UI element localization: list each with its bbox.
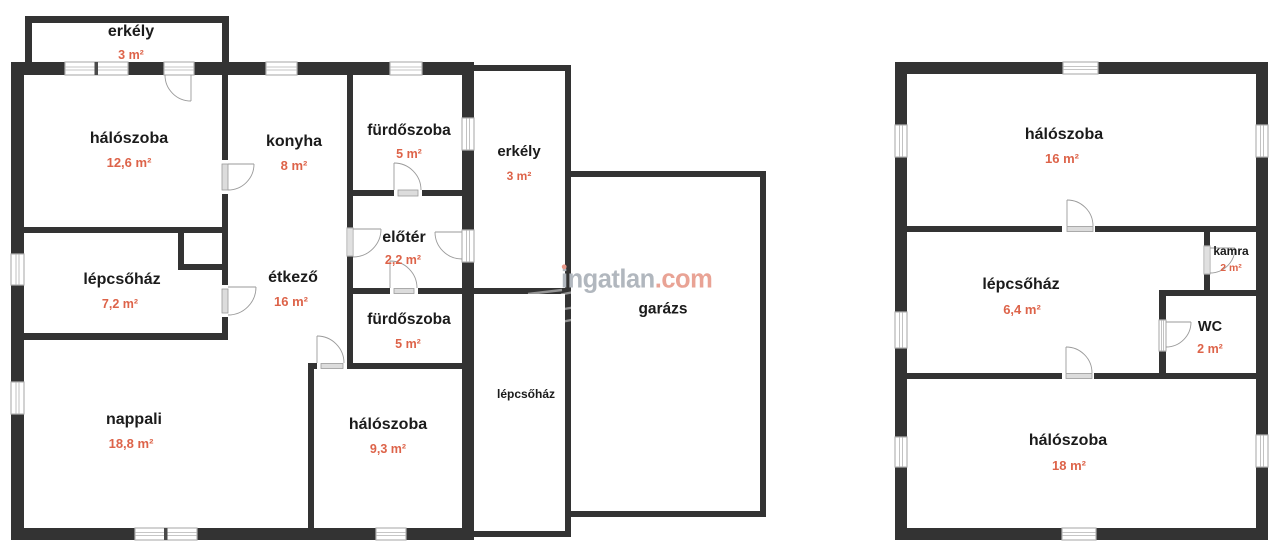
svg-text:5 m²: 5 m²	[396, 147, 422, 161]
svg-text:5 m²: 5 m²	[395, 337, 421, 351]
svg-text:fürdőszoba: fürdőszoba	[367, 311, 451, 328]
svg-text:erkély: erkély	[108, 23, 154, 40]
svg-text:előtér: előtér	[382, 229, 426, 246]
svg-text:WC: WC	[1198, 319, 1223, 335]
svg-text:hálószoba: hálószoba	[349, 416, 427, 433]
svg-text:3 m²: 3 m²	[118, 48, 144, 62]
svg-text:2,2 m²: 2,2 m²	[385, 253, 421, 267]
svg-text:16 m²: 16 m²	[274, 294, 309, 309]
svg-text:lépcsőház: lépcsőház	[982, 276, 1059, 293]
svg-text:hálószoba: hálószoba	[1025, 126, 1103, 143]
svg-text:18,8 m²: 18,8 m²	[109, 436, 154, 451]
svg-text:hálószoba: hálószoba	[1029, 432, 1107, 449]
svg-text:hálószoba: hálószoba	[90, 130, 168, 147]
svg-text:étkező: étkező	[268, 269, 318, 286]
svg-text:7,2 m²: 7,2 m²	[102, 297, 138, 311]
svg-text:ingatlan.com: ingatlan.com	[561, 266, 712, 294]
svg-text:lépcsőház: lépcsőház	[497, 387, 555, 401]
svg-text:fürdőszoba: fürdőszoba	[367, 122, 451, 139]
svg-text:12,6 m²: 12,6 m²	[107, 155, 152, 170]
svg-text:16 m²: 16 m²	[1045, 151, 1080, 166]
svg-text:lépcsőház: lépcsőház	[83, 271, 160, 288]
svg-text:erkély: erkély	[497, 143, 541, 160]
svg-text:6,4 m²: 6,4 m²	[1003, 302, 1041, 317]
svg-text:2 m²: 2 m²	[1220, 262, 1242, 274]
svg-text:kamra: kamra	[1213, 244, 1249, 258]
svg-text:garázs: garázs	[638, 301, 687, 318]
svg-text:2 m²: 2 m²	[1197, 342, 1223, 356]
svg-text:18 m²: 18 m²	[1052, 458, 1087, 473]
svg-text:9,3 m²: 9,3 m²	[370, 442, 406, 456]
svg-text:3 m²: 3 m²	[507, 169, 532, 183]
svg-text:8 m²: 8 m²	[281, 158, 308, 173]
svg-text:nappali: nappali	[106, 411, 162, 428]
svg-text:konyha: konyha	[266, 133, 322, 150]
